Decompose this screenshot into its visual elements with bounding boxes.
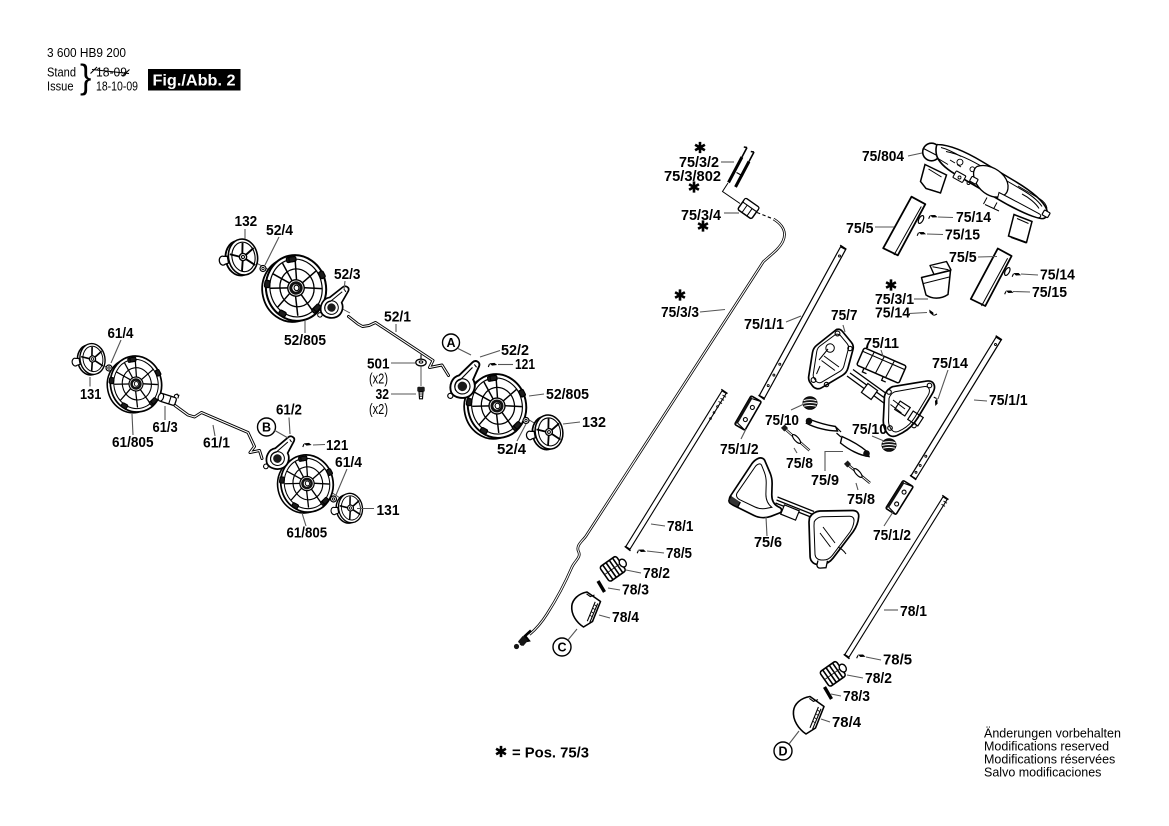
svg-text:75/14: 75/14 (1040, 268, 1075, 284)
svg-text:(x2): (x2) (369, 402, 388, 418)
svg-text:C: C (557, 641, 566, 655)
svg-text:132: 132 (582, 415, 606, 431)
svg-text:61/805: 61/805 (112, 435, 154, 451)
svg-text:75/1/1: 75/1/1 (744, 317, 784, 333)
svg-text:131: 131 (80, 387, 101, 403)
svg-text:Salvo modificaciones: Salvo modificaciones (984, 766, 1101, 780)
svg-text:32: 32 (376, 387, 390, 403)
svg-text:78/1: 78/1 (667, 519, 693, 535)
svg-text:75/14: 75/14 (956, 210, 991, 226)
svg-text:Modifications reserved: Modifications reserved (984, 740, 1109, 754)
svg-text:75/10: 75/10 (852, 422, 887, 438)
svg-text:75/15: 75/15 (1032, 285, 1067, 301)
svg-text:Stand: Stand (47, 66, 76, 80)
svg-text:75/8: 75/8 (847, 492, 875, 508)
svg-text:75/9: 75/9 (811, 473, 839, 489)
svg-text:75/5: 75/5 (949, 250, 977, 266)
svg-text:Issue: Issue (47, 80, 74, 94)
svg-text:501: 501 (367, 357, 390, 373)
svg-text:78/3: 78/3 (622, 583, 649, 599)
svg-text:75/3/4: 75/3/4 (681, 208, 721, 224)
svg-text:61/4: 61/4 (108, 326, 134, 342)
svg-text:75/15: 75/15 (945, 228, 980, 244)
svg-text:131: 131 (377, 503, 400, 519)
svg-text:132: 132 (235, 214, 258, 230)
svg-text:78/3: 78/3 (843, 689, 870, 705)
svg-text:Änderungen vorbehalten: Änderungen vorbehalten (984, 727, 1121, 741)
svg-text:75/7: 75/7 (831, 308, 858, 324)
svg-text:D: D (778, 745, 787, 759)
svg-text:121: 121 (515, 357, 535, 373)
svg-text:78/5: 78/5 (883, 653, 912, 669)
svg-text:75/8: 75/8 (786, 456, 813, 472)
svg-text:61/805: 61/805 (287, 526, 328, 542)
svg-text:18-10-09: 18-10-09 (96, 80, 138, 94)
svg-text:52/3: 52/3 (334, 267, 361, 283)
svg-text:= Pos. 75/3: = Pos. 75/3 (512, 746, 589, 762)
svg-text:52/805: 52/805 (546, 387, 589, 403)
svg-text:Modifications réservées: Modifications réservées (984, 753, 1115, 767)
svg-text:78/4: 78/4 (832, 715, 861, 731)
svg-text:75/14: 75/14 (932, 356, 968, 372)
svg-text:78/4: 78/4 (612, 610, 639, 626)
svg-text:121: 121 (326, 438, 348, 454)
svg-text:78/5: 78/5 (666, 546, 692, 562)
svg-text:75/3/802: 75/3/802 (664, 169, 721, 185)
svg-text:(x2): (x2) (369, 372, 388, 388)
svg-text:52/4: 52/4 (266, 223, 293, 239)
svg-text:78/2: 78/2 (865, 671, 892, 687)
svg-text:75/1/1: 75/1/1 (989, 393, 1028, 409)
svg-text:75/1/2: 75/1/2 (873, 528, 911, 544)
svg-text:52/4: 52/4 (497, 442, 526, 458)
svg-text:61/1: 61/1 (203, 436, 230, 452)
svg-text:78/2: 78/2 (643, 566, 670, 582)
svg-text:75/11: 75/11 (864, 336, 899, 352)
svg-text:61/4: 61/4 (335, 455, 362, 471)
svg-text:75/14: 75/14 (875, 306, 910, 322)
svg-text:Fig./Abb. 2: Fig./Abb. 2 (153, 73, 236, 90)
svg-text:75/804: 75/804 (862, 149, 904, 165)
svg-text:52/805: 52/805 (284, 333, 326, 349)
svg-text:61/2: 61/2 (276, 403, 302, 419)
svg-text:75/10: 75/10 (765, 413, 799, 429)
svg-text:B: B (262, 421, 271, 435)
svg-text:A: A (446, 336, 455, 350)
svg-text:78/1: 78/1 (900, 604, 927, 620)
svg-text:52/1: 52/1 (384, 310, 411, 326)
svg-text:75/5: 75/5 (846, 221, 874, 237)
svg-text:75/1/2: 75/1/2 (720, 442, 759, 458)
svg-text:}: } (80, 59, 91, 97)
svg-text:75/6: 75/6 (754, 535, 782, 551)
svg-text:75/3/3: 75/3/3 (661, 305, 699, 321)
svg-text:61/3: 61/3 (153, 420, 178, 436)
